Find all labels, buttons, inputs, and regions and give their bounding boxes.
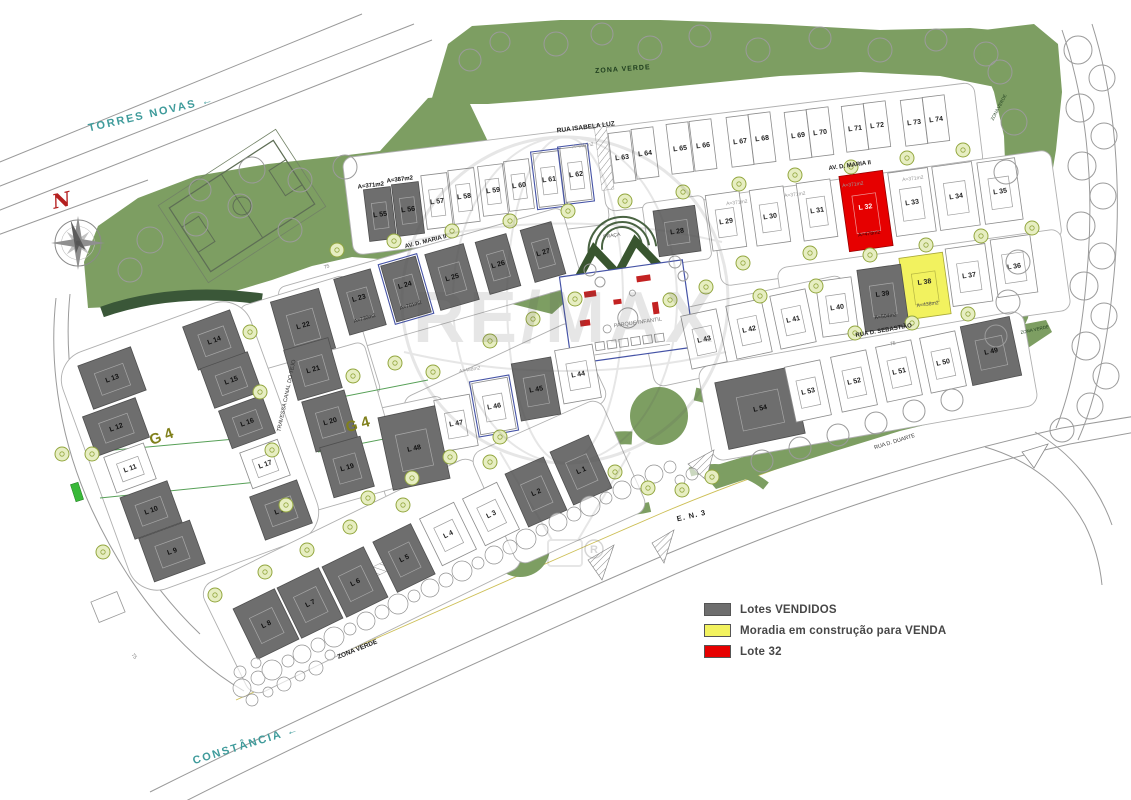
shrub-icon [516,529,536,549]
legend-swatch [704,624,731,637]
shrub-icon [325,650,335,660]
street-tree-icon [445,224,459,238]
lot-l-39: L 39A=504m2 [857,264,909,332]
tree-outline-icon [1067,212,1095,240]
legend-swatch [704,603,731,616]
shrub-icon [277,677,291,691]
street-tree-icon [85,447,99,461]
lot-parcel [857,264,909,332]
map-label: E. N. 3 [676,508,707,524]
legend-label: Lote 32 [740,646,782,658]
street-tree-icon [753,289,767,303]
street-tree-icon [675,483,689,497]
street-tree-icon [396,498,410,512]
street-tree-icon [956,143,970,157]
tree-outline-icon [1070,272,1098,300]
shrub-icon [311,638,325,652]
traffic-island-4 [652,530,674,563]
street-tree-icon [919,238,933,252]
legend-label: Lotes VENDIDOS [740,604,837,616]
street-tree-icon [405,471,419,485]
street-tree-icon [243,325,257,339]
street-tree-icon [346,369,360,383]
street-tree-icon [387,234,401,248]
shrub-icon [645,465,663,483]
street-tree-icon [55,447,69,461]
street-tree-icon [330,243,344,257]
street-tree-icon [96,545,110,559]
map-label: 75 [130,652,138,660]
lot-l-34: L 34 [932,162,981,231]
map-label: 75 [323,263,330,270]
map-label: CONSTÂNCIA ← [191,722,301,767]
shrub-icon [388,594,408,614]
shrub-icon [421,579,439,597]
tree-outline-icon [1068,152,1096,180]
tree-outline-icon [1089,65,1115,91]
shrub-icon [408,590,420,602]
tree-outline-icon [1077,393,1103,419]
shrub-icon [246,694,258,706]
site-plan-page: L 55L 56L 57L 58L 59L 60L 61L 62L 63L 64… [0,0,1131,800]
street-tree-icon [863,248,877,262]
street-tree-icon [788,168,802,182]
shrub-icon [375,605,389,619]
street-tree-icon [809,279,823,293]
street-tree-icon [208,588,222,602]
shrub-icon [686,468,698,480]
street-tree-icon [1025,221,1039,235]
tree-outline-icon [1093,363,1119,389]
shrub-icon [263,687,273,697]
shrub-icon [295,671,305,681]
legend: Lotes VENDIDOSMoradia em construção para… [704,603,946,666]
street-tree-icon [803,246,817,260]
lot-l-55: L 55 [363,187,396,242]
street-tree-icon [388,356,402,370]
lot-l-35: L 35 [977,158,1023,225]
registered-letter: R [590,544,598,556]
street-tree-icon [705,470,719,484]
shrub-icon [282,655,294,667]
shrub-icon [664,461,676,473]
shrub-icon [549,513,567,531]
street-tree-icon [443,450,457,464]
shrub-icon [234,666,246,678]
legend-item: Lote 32 [704,645,946,658]
shrub-icon [503,540,517,554]
small-building [91,592,125,623]
tree-outline-icon [1089,243,1115,269]
street-tree-icon [258,565,272,579]
street-tree-icon [253,385,267,399]
street-tree-icon [483,455,497,469]
tree-outline-icon [1091,303,1117,329]
shrub-icon [357,612,375,630]
legend-item: Moradia em construção para VENDA [704,624,946,637]
north-label: N [49,186,74,214]
lot-l-37: L 37 [945,243,993,306]
street-tree-icon [561,204,575,218]
shrub-icon [293,645,311,663]
street-tree-icon [300,543,314,557]
street-tree-icon [974,229,988,243]
tree-outline-icon [1072,332,1100,360]
street-tree-icon [343,520,357,534]
road-se-junction [985,447,1102,585]
street-tree-icon [265,443,279,457]
shrub-icon [567,507,581,521]
street-tree-icon [732,177,746,191]
compass-center-dot [76,241,81,246]
shrub-icon [309,661,323,675]
shrub-icon [452,561,472,581]
shrub-icon [344,623,356,635]
shrub-icon [324,627,344,647]
shrub-icon [613,481,631,499]
shrub-icon [485,546,503,564]
street-tree-icon [961,307,975,321]
site-plan-drawing: L 55L 56L 57L 58L 59L 60L 61L 62L 63L 64… [0,0,1131,800]
shrub-icon [233,679,251,697]
compass-needle [66,219,86,253]
shrub-icon [439,573,453,587]
legend-swatch [704,645,731,658]
street-tree-icon [900,151,914,165]
shrub-icon [251,658,261,668]
street-tree-icon [279,498,293,512]
street-tree-icon [641,481,655,495]
lot-l-36: L 36 [990,234,1038,297]
street-tree-icon [618,194,632,208]
tree-outline-icon [1091,123,1117,149]
legend-label: Moradia em construção para VENDA [740,625,946,637]
legend-item: Lotes VENDIDOS [704,603,946,616]
watermark-text: RE/MAX [413,278,717,358]
street-tree-icon [426,365,440,379]
shrub-icon [262,660,282,680]
building-outline [91,592,125,623]
street-tree-icon [361,491,375,505]
street-tree-icon [736,256,750,270]
shrub-icon [472,557,484,569]
tree-outline-icon [1090,183,1116,209]
